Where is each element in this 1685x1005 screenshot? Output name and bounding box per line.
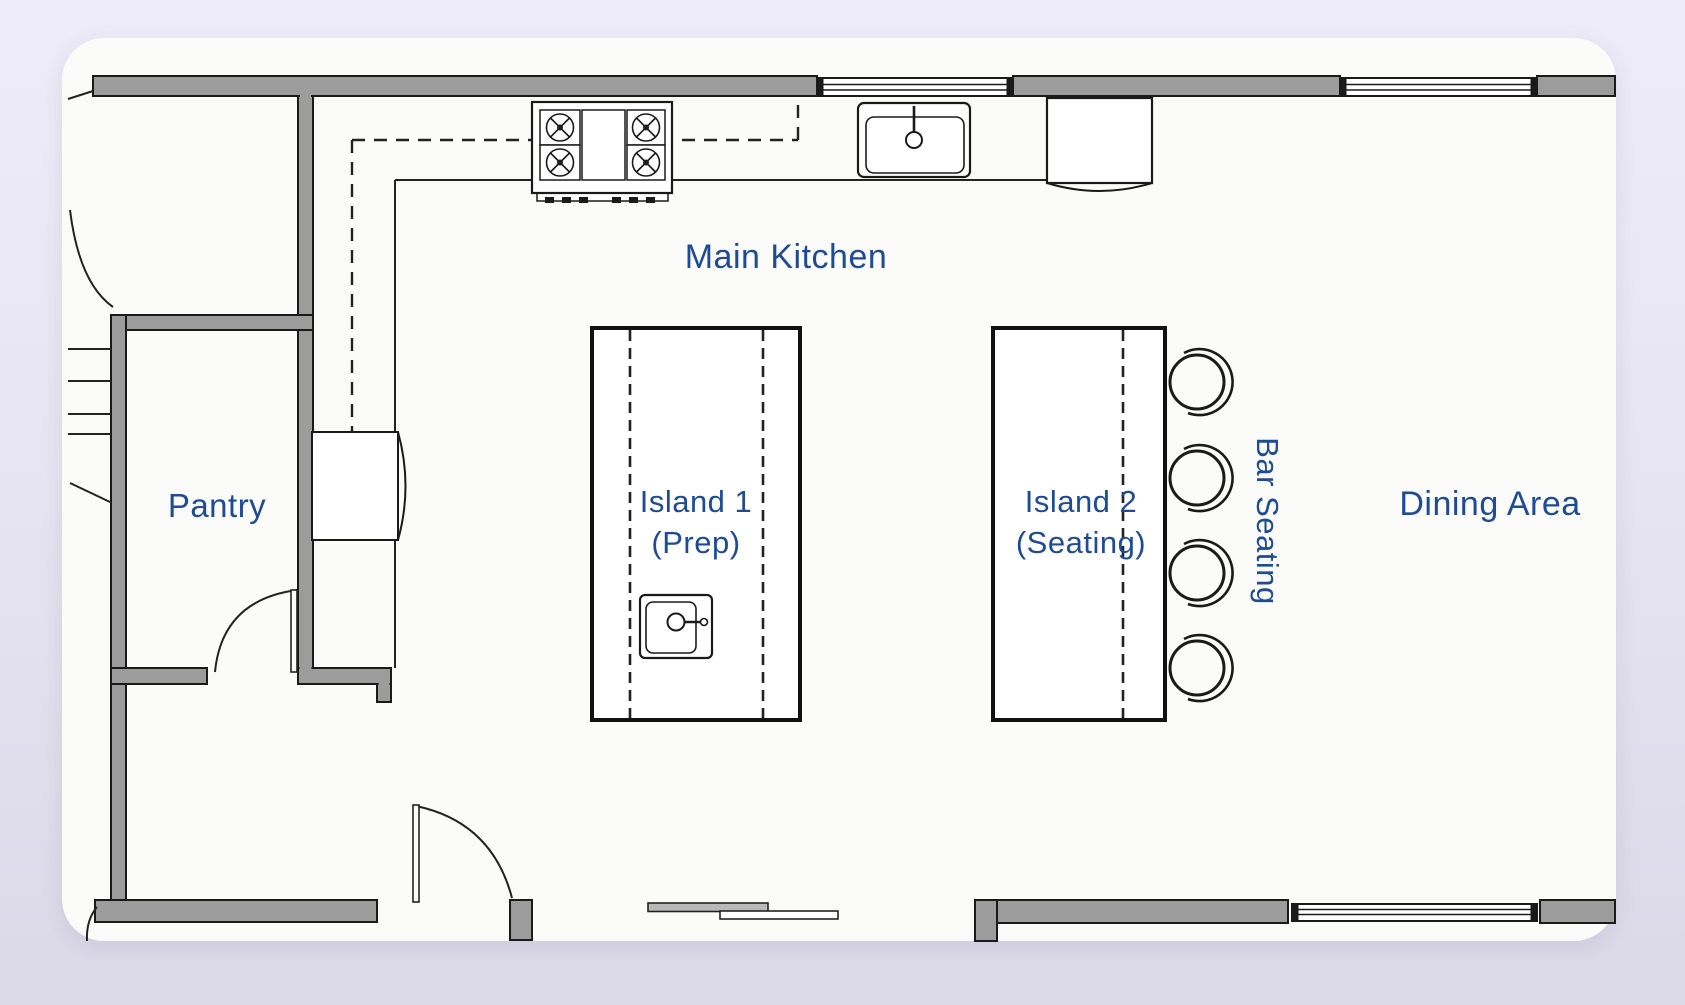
corner-tick [68,91,93,99]
label-island-1: Island 1(Prep) [596,481,796,563]
wall-left-exterior [111,315,126,922]
floor-plan-stage: Main Kitchen Pantry Island 1(Prep) Islan… [0,0,1685,1005]
window-top-left [817,78,1013,96]
wall-bottom-left [95,900,377,922]
door-leaf-pantry [291,590,297,672]
wall-top-left-segment [93,76,817,96]
door-leaf-bottom [413,805,419,902]
window-bottom-right [1292,904,1537,921]
door-swing-bottom [416,806,512,898]
prep-sink-icon [640,595,712,658]
label-island-2: Island 2(Seating) [981,481,1181,563]
label-dining-area: Dining Area [1360,485,1620,524]
label-main-kitchen: Main Kitchen [636,238,936,277]
door-swing-foyer [70,210,113,307]
door-bottom [413,805,512,902]
sliding-door [648,903,838,919]
wall-bottom-right [975,900,1288,923]
door-pantry [215,590,297,672]
bar-stool-icon [1170,349,1233,415]
wall-closet-bottom [298,668,391,684]
wall-closet-stub [377,684,391,702]
window-top-right [1340,78,1537,96]
wall-door-stub [510,900,532,940]
wall-top-right-segment [1537,76,1615,96]
range-cooktop-icon [532,102,672,203]
exterior-edge-details [68,91,97,941]
label-bar-seating: Bar Seating [1249,406,1285,636]
stairs [68,349,111,502]
kitchen-sink-icon [858,103,970,177]
wall-top-mid-segment [1013,76,1340,96]
wall-pantry-top [111,315,313,330]
wall-kitchen-left-vertical [298,96,313,668]
refrigerator-top-icon [1047,98,1152,191]
wall-pantry-bottom [111,668,207,684]
refrigerator-side-icon [312,432,406,540]
wall-bottom-far-right [1540,900,1615,923]
label-pantry: Pantry [117,487,317,525]
stairs-break-line [70,483,110,502]
bar-stool-icon [1170,635,1233,701]
door-swing-pantry [215,590,297,672]
